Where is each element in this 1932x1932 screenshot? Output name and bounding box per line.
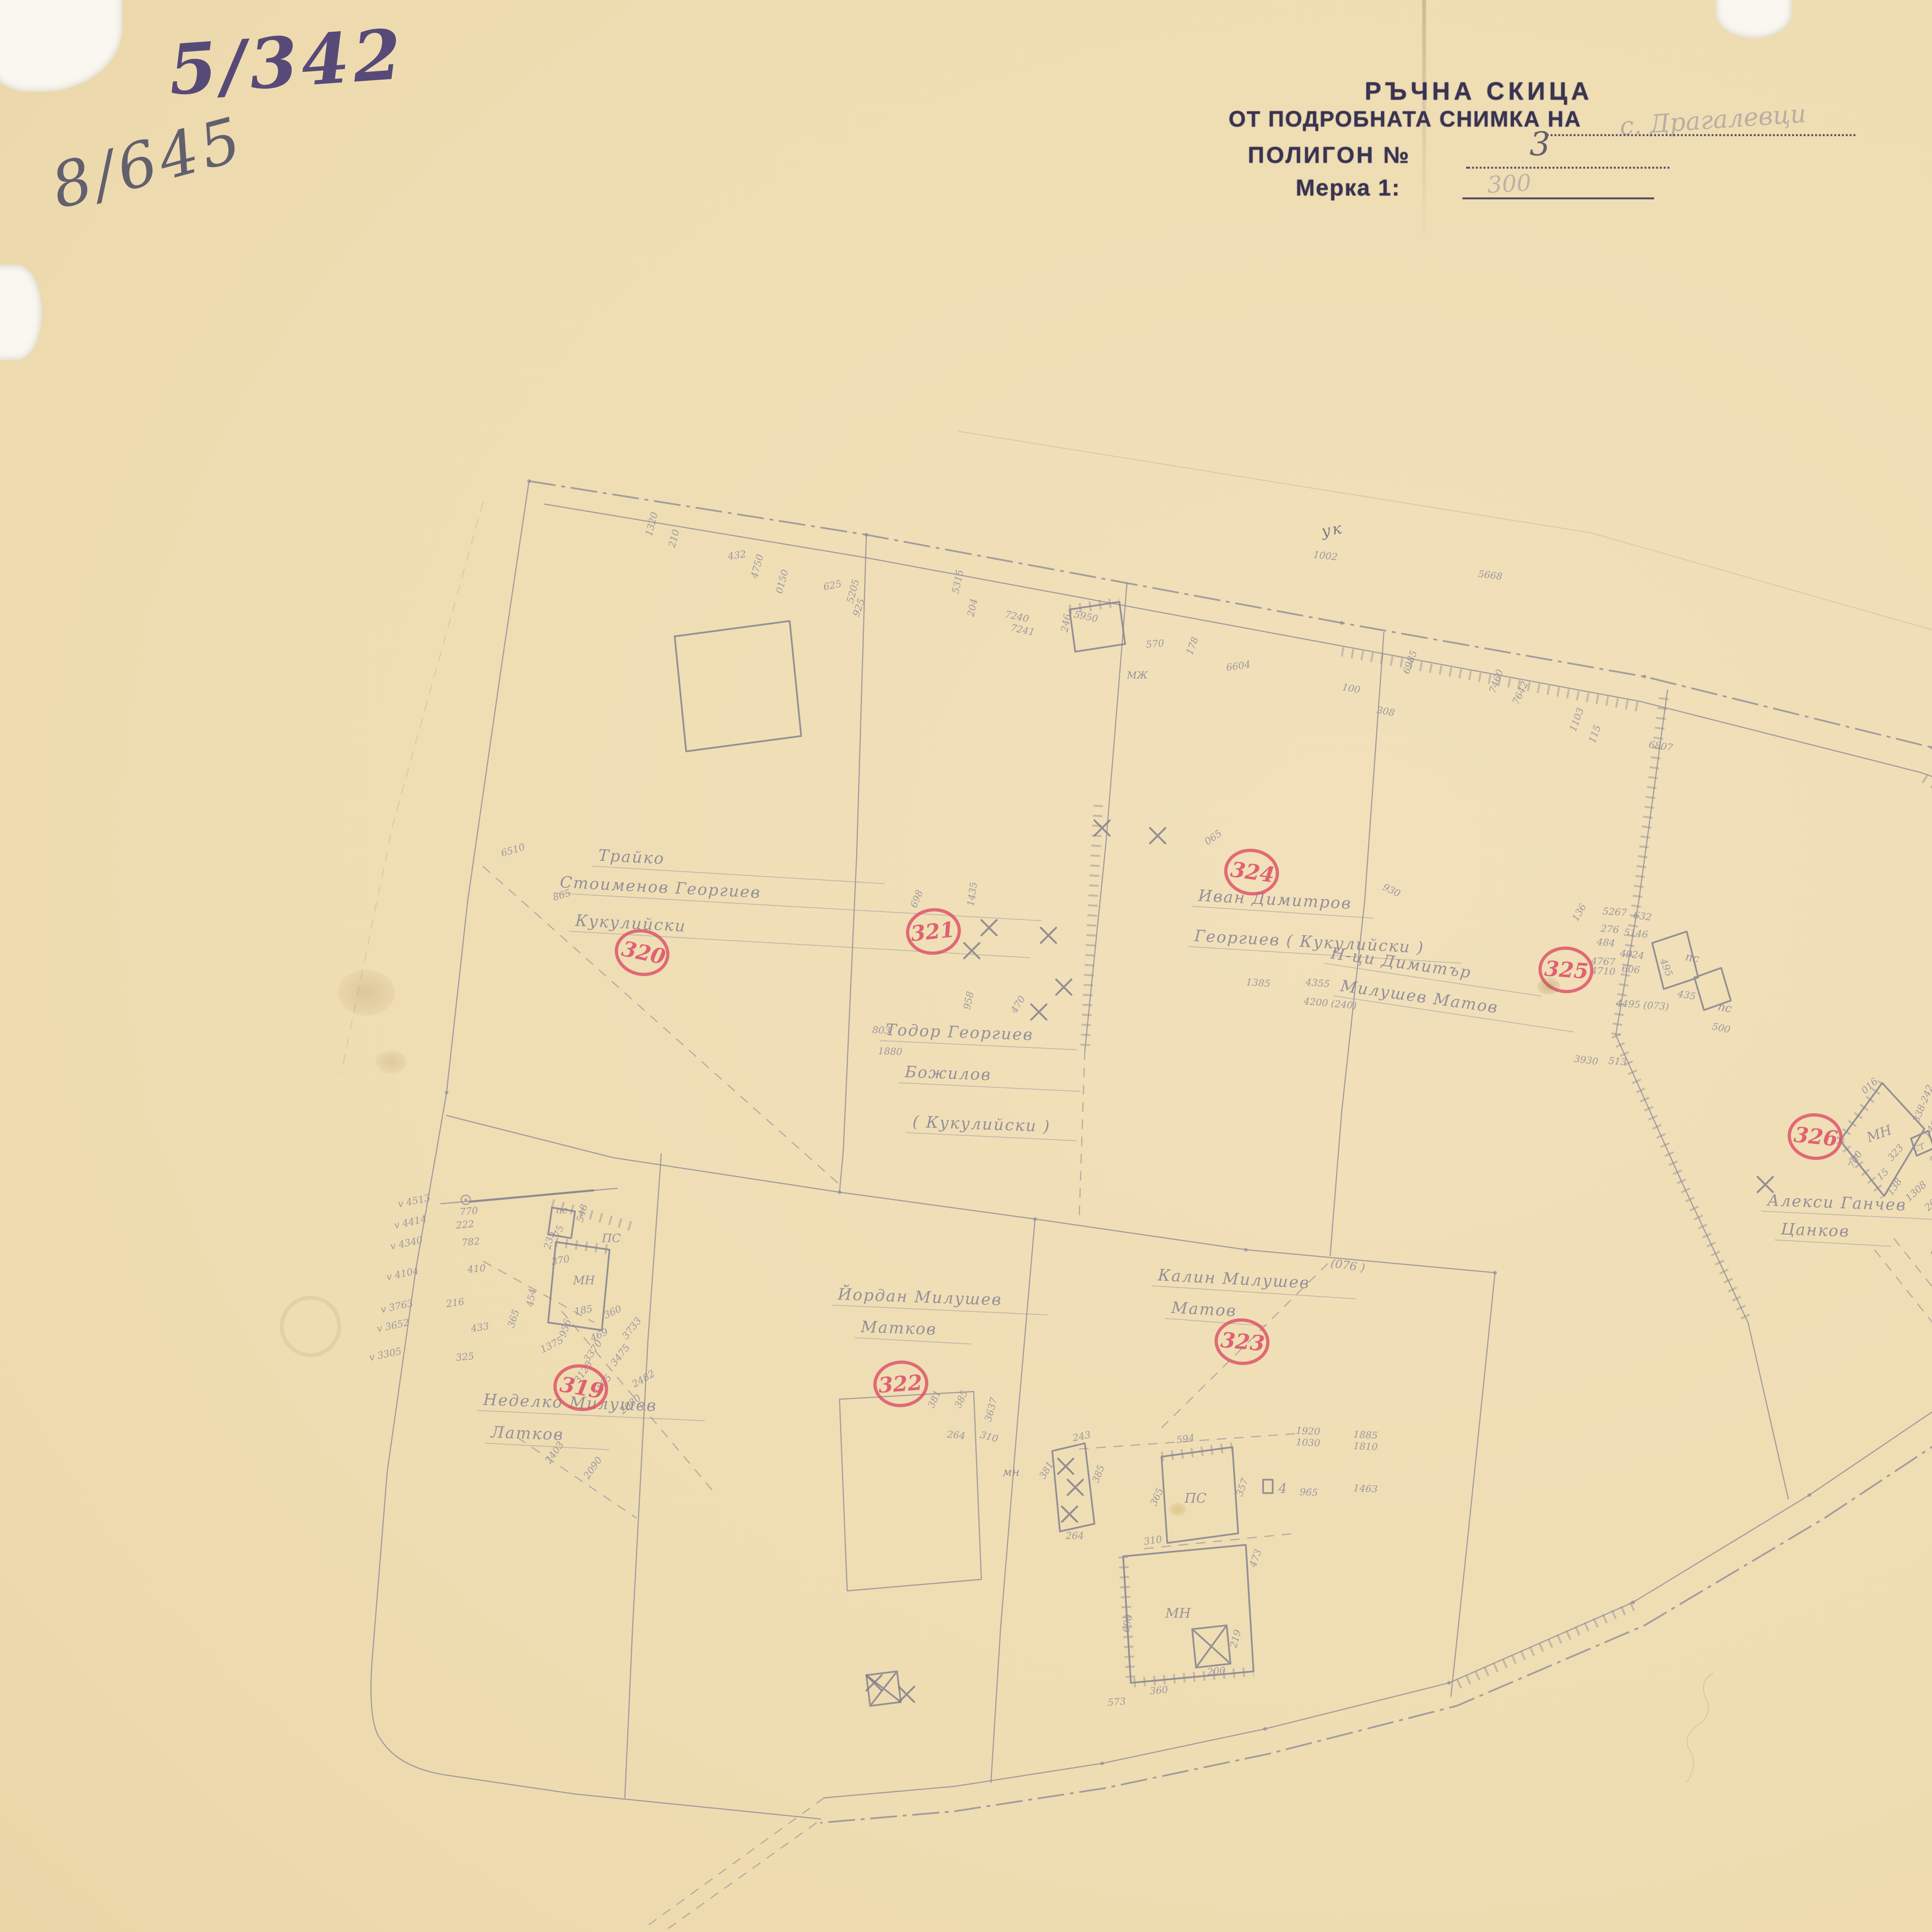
measurement-label: 1002 <box>1313 549 1338 563</box>
measurement-label: 385 <box>1090 1463 1107 1484</box>
measurement-label: 500 <box>1711 1020 1731 1035</box>
measurement-label: 1885 <box>1353 1429 1378 1441</box>
annex-323-x <box>1192 1625 1230 1667</box>
owner-underline <box>1761 1211 1932 1219</box>
owner-name-321: ( Кукулийски ) <box>912 1112 1051 1136</box>
point-square-4 <box>1263 1480 1273 1493</box>
boundary-326-west <box>1616 1035 1788 1499</box>
measurement-label: 3475 <box>608 1342 632 1368</box>
stain-3 <box>1537 978 1560 995</box>
south-road-inner <box>824 1123 1932 1798</box>
measurement-label: 4495 (073) <box>1615 997 1669 1012</box>
measurement-label: 310 <box>979 1429 999 1444</box>
title-dotted-line-2 <box>1466 167 1670 169</box>
measurement-label: 7241 <box>1010 622 1036 638</box>
measurement-label: 548 <box>574 1203 590 1223</box>
parcel-number-324: 324 <box>1229 857 1276 887</box>
west-boundary-320 <box>447 481 529 1092</box>
stain-2 <box>376 1050 406 1073</box>
measurement-label: 6807 <box>1648 739 1674 753</box>
measurement-label: 185 <box>573 1303 594 1317</box>
title-line-1: РЪЧНА СКИЦА <box>1365 77 1593 105</box>
measurement-label: 4924 <box>1619 947 1645 961</box>
measurement-label: 323 <box>1885 1142 1906 1163</box>
measurement-label: 264 <box>946 1429 966 1441</box>
hatch-north-road-2 <box>1924 778 1932 893</box>
survey-points <box>445 479 1932 1765</box>
measurement-label: 360 <box>602 1303 623 1321</box>
faint-road-script <box>1687 1673 1713 1782</box>
boundary-319-322 <box>625 1154 661 1798</box>
measurement-label: 0150 <box>774 568 791 595</box>
measurement-label: 3930 <box>1573 1053 1599 1067</box>
measurement-label: 5146 <box>1623 927 1649 940</box>
measurement-label: 570 <box>1145 638 1165 650</box>
catalog-number-purple: 5/342 <box>166 15 408 112</box>
measurement-label: 2090 <box>581 1455 604 1481</box>
measurement-label: 1320 <box>643 511 660 537</box>
map-annotation: ПС <box>1184 1491 1207 1506</box>
cadastral-sketch-map: 1002566806593013652676322765146484492447… <box>0 0 1932 1932</box>
measurement-label: 7642 <box>1510 680 1531 706</box>
measurement-label: 365 <box>505 1308 522 1329</box>
map-annotation: 4 <box>1278 1481 1287 1497</box>
measurement-label: 381 <box>925 1388 943 1410</box>
measurement-label: 432 <box>727 548 747 562</box>
measurement-label: 6510 <box>500 841 526 859</box>
measurement-label: 136 <box>1570 901 1588 923</box>
building-321 <box>675 621 801 751</box>
measurement-label: 1810 <box>1353 1440 1378 1452</box>
measurement-label: 433 <box>469 1320 490 1335</box>
parcel-number-323: 323 <box>1219 1327 1265 1356</box>
owner-name-320: Трайко <box>598 846 665 868</box>
measurement-label: 594 <box>1175 1432 1195 1446</box>
measurement-label: 276 <box>1600 923 1619 935</box>
owner-underline <box>855 1338 972 1344</box>
measurement-label: 200 <box>1206 1665 1226 1677</box>
lane-line-bold <box>469 1190 594 1202</box>
measurement-label: v 4414 <box>393 1213 427 1231</box>
measurement-label: 1030 <box>1296 1436 1321 1449</box>
measurement-label: 246 <box>1059 613 1073 633</box>
measurement-label: 6604 <box>1225 659 1251 673</box>
owner-name-321: Божилов <box>904 1063 992 1084</box>
measurement-label: v 4340 <box>389 1234 423 1252</box>
measurement-label: v 3763 <box>379 1298 414 1315</box>
measurement-label: 530 <box>1927 1143 1932 1164</box>
measurement-label: 6985 <box>1400 649 1419 675</box>
measurement-label: 15 <box>1874 1166 1891 1182</box>
polygon-number-handwritten: 3 <box>1529 126 1550 165</box>
title-line-4: Мерка 1: <box>1296 174 1400 201</box>
parcel-number-326: 326 <box>1793 1122 1839 1151</box>
measurement-label: 1435 <box>965 881 980 907</box>
measurement-label: 1463 <box>1353 1482 1378 1495</box>
measurement-label: 1385 <box>1246 976 1271 989</box>
measurement-label: 965 <box>1299 1486 1318 1498</box>
measurement-label: 470 <box>1008 994 1027 1015</box>
map-annotation: МН <box>1165 1606 1191 1621</box>
map-annotation: (076 ) <box>1330 1257 1366 1275</box>
measurement-label: 930 <box>1381 881 1402 899</box>
boundary-323-east <box>1451 1273 1495 1696</box>
measurement-label: 5950 <box>1073 609 1099 624</box>
map-annotation: МН <box>1864 1122 1894 1146</box>
measurement-label: 1103 <box>1567 706 1586 733</box>
map-annotation: мн <box>1002 1466 1019 1479</box>
measurement-label: 5315 <box>950 568 966 595</box>
parcel-number-320: 320 <box>619 936 668 969</box>
measurement-label: 216 <box>445 1296 465 1310</box>
measurement-label: 454 <box>524 1287 538 1308</box>
construction-line <box>958 431 1932 636</box>
owner-name-322: Матков <box>860 1317 937 1338</box>
owner-underline <box>1775 1240 1892 1247</box>
owner-name-321: Тодор Георгиев <box>885 1020 1034 1044</box>
dash-326-se <box>1874 1238 1932 1399</box>
owner-underline <box>485 1443 609 1450</box>
title-line-3: ПОЛИГОН № <box>1248 142 1411 168</box>
owner-name-323: Калин Милушев <box>1157 1266 1311 1293</box>
scale-value-handwritten: 300 <box>1487 170 1532 199</box>
stain-1 <box>337 970 395 1016</box>
measurement-label: 100 <box>1341 681 1361 696</box>
measurement-label: 473 <box>1247 1548 1264 1569</box>
measurement-label: 219 <box>1228 1628 1243 1649</box>
road-continuation-2 <box>636 1823 816 1932</box>
misc-labels: орех.294МНСТпспсвквк(076 )58.8556.85ПСМН… <box>556 519 1932 1621</box>
measurement-label: 3733 <box>620 1315 644 1341</box>
measurement-label: 338-242 <box>1910 1083 1932 1124</box>
map-annotation: пс <box>556 1204 568 1216</box>
measurement-label: 204 <box>965 597 980 618</box>
stain-ring <box>280 1296 341 1357</box>
scanned-sketch-sheet: 1002566806593013652676322765146484492447… <box>0 0 1932 1932</box>
map-annotation: ук <box>1319 519 1345 541</box>
owner-name-319: Латков <box>490 1423 565 1444</box>
measurement-label: 1920 <box>1296 1425 1321 1437</box>
owner-labels: ТрайкоСтоименов ГеоргиевКукулийскиТодор … <box>477 846 1932 1450</box>
measurement-label: 115 <box>1586 723 1603 744</box>
owner-name-324: Иван Димитров <box>1197 886 1352 913</box>
map-annotation: ПС <box>602 1231 621 1245</box>
measurement-label: 573 <box>1107 1696 1126 1708</box>
title-dotted-line-1 <box>1545 134 1855 136</box>
measurement-label: 513 <box>1608 1055 1627 1068</box>
measurement-label: 4750 <box>748 553 766 580</box>
measurement-label: 065 <box>1202 828 1224 847</box>
measurement-label: v 3305 <box>368 1345 403 1363</box>
measurement-label: 770 <box>459 1205 478 1218</box>
measurement-label: 606 <box>1621 963 1641 976</box>
measurement-label: 357 <box>1234 1477 1251 1498</box>
measurement-label: 625 <box>822 578 842 592</box>
measurement-label: 5267 <box>1602 905 1627 918</box>
title-solid-line <box>1463 197 1654 199</box>
hatch-south-road <box>1453 1606 1633 1687</box>
measurement-label: 264 <box>1065 1530 1084 1541</box>
map-annotation: пс <box>1684 950 1701 966</box>
measurement-label: 4355 <box>1305 976 1330 990</box>
owner-name-326: Цанков <box>1780 1219 1850 1240</box>
boundary-321-324 <box>1085 583 1127 1050</box>
owner-name-320: Стоименов Георгиев <box>560 873 762 902</box>
inner-lot-322 <box>840 1391 981 1591</box>
measurement-label: v 3652 <box>376 1316 410 1334</box>
owner-underline <box>906 1133 1077 1141</box>
measurement-label: 435 <box>1676 988 1697 1002</box>
measurement-label: 3637 <box>982 1396 999 1423</box>
measurement-label: 5668 <box>1478 568 1503 582</box>
measurement-label: 308 <box>1376 704 1396 719</box>
map-annotation: МЖ <box>1127 670 1148 681</box>
dash-320 <box>483 866 840 1184</box>
owner-name-325: Милушев Матов <box>1339 976 1500 1017</box>
boundary-320-321 <box>840 535 866 1192</box>
parcel-number-322: 322 <box>878 1370 923 1398</box>
measurement-label: 484 <box>1596 936 1616 949</box>
measurement-label: 360 <box>1149 1684 1168 1697</box>
measurement-label: 1375 <box>538 1334 565 1355</box>
measurement-label: 958 <box>961 990 976 1010</box>
measurement-label: 4710 <box>1590 965 1616 977</box>
owner-name-322: Йордан Милушев <box>837 1284 1002 1309</box>
measurement-label: 365 <box>1148 1486 1165 1507</box>
measurement-label: 140 <box>1921 1119 1932 1140</box>
measurement-label: 210 <box>666 528 682 549</box>
hatch-fence-324 <box>1085 805 1099 1050</box>
north-road-outer <box>529 481 1932 1152</box>
measurement-label: 698 <box>908 888 925 910</box>
measurement-label: 1880 <box>878 1045 903 1057</box>
boundary-321-324-dash <box>1079 1050 1085 1221</box>
dash-319c <box>517 1437 636 1518</box>
measurement-label: 310 <box>1143 1534 1163 1547</box>
measurement-label: 222 <box>455 1218 475 1231</box>
measurement-label: 178 <box>1184 635 1201 656</box>
measurement-label: 138 <box>1884 1176 1904 1197</box>
measurement-label: 243 <box>1071 1429 1092 1444</box>
measurement-label: 1308 <box>1903 1179 1929 1204</box>
measurement-label: 782 <box>461 1235 480 1248</box>
shed-bottom-x <box>866 1671 901 1706</box>
measurement-label: 20 <box>1922 1197 1932 1213</box>
measurement-label: 662 <box>1929 1245 1932 1261</box>
measurement-label: 370 <box>551 1253 571 1267</box>
measurement-label: 325 <box>456 1350 475 1363</box>
stain-4 <box>1169 1503 1187 1516</box>
map-annotation: МН <box>573 1274 595 1287</box>
measurement-label: 410 <box>466 1262 486 1275</box>
map-annotation: пс <box>1717 1000 1733 1016</box>
owner-name-323: Матов <box>1170 1298 1237 1320</box>
measurement-label: 385 <box>952 1388 970 1410</box>
title-line-2: ОТ ПОДРОБНАТА СНИМКА НА <box>1229 109 1582 133</box>
road-continuation-1 <box>644 1798 824 1928</box>
parcel-number-321: 321 <box>910 917 956 946</box>
measurement-label: 7240 <box>1004 609 1030 624</box>
measurement-label: 2482 <box>630 1368 657 1390</box>
